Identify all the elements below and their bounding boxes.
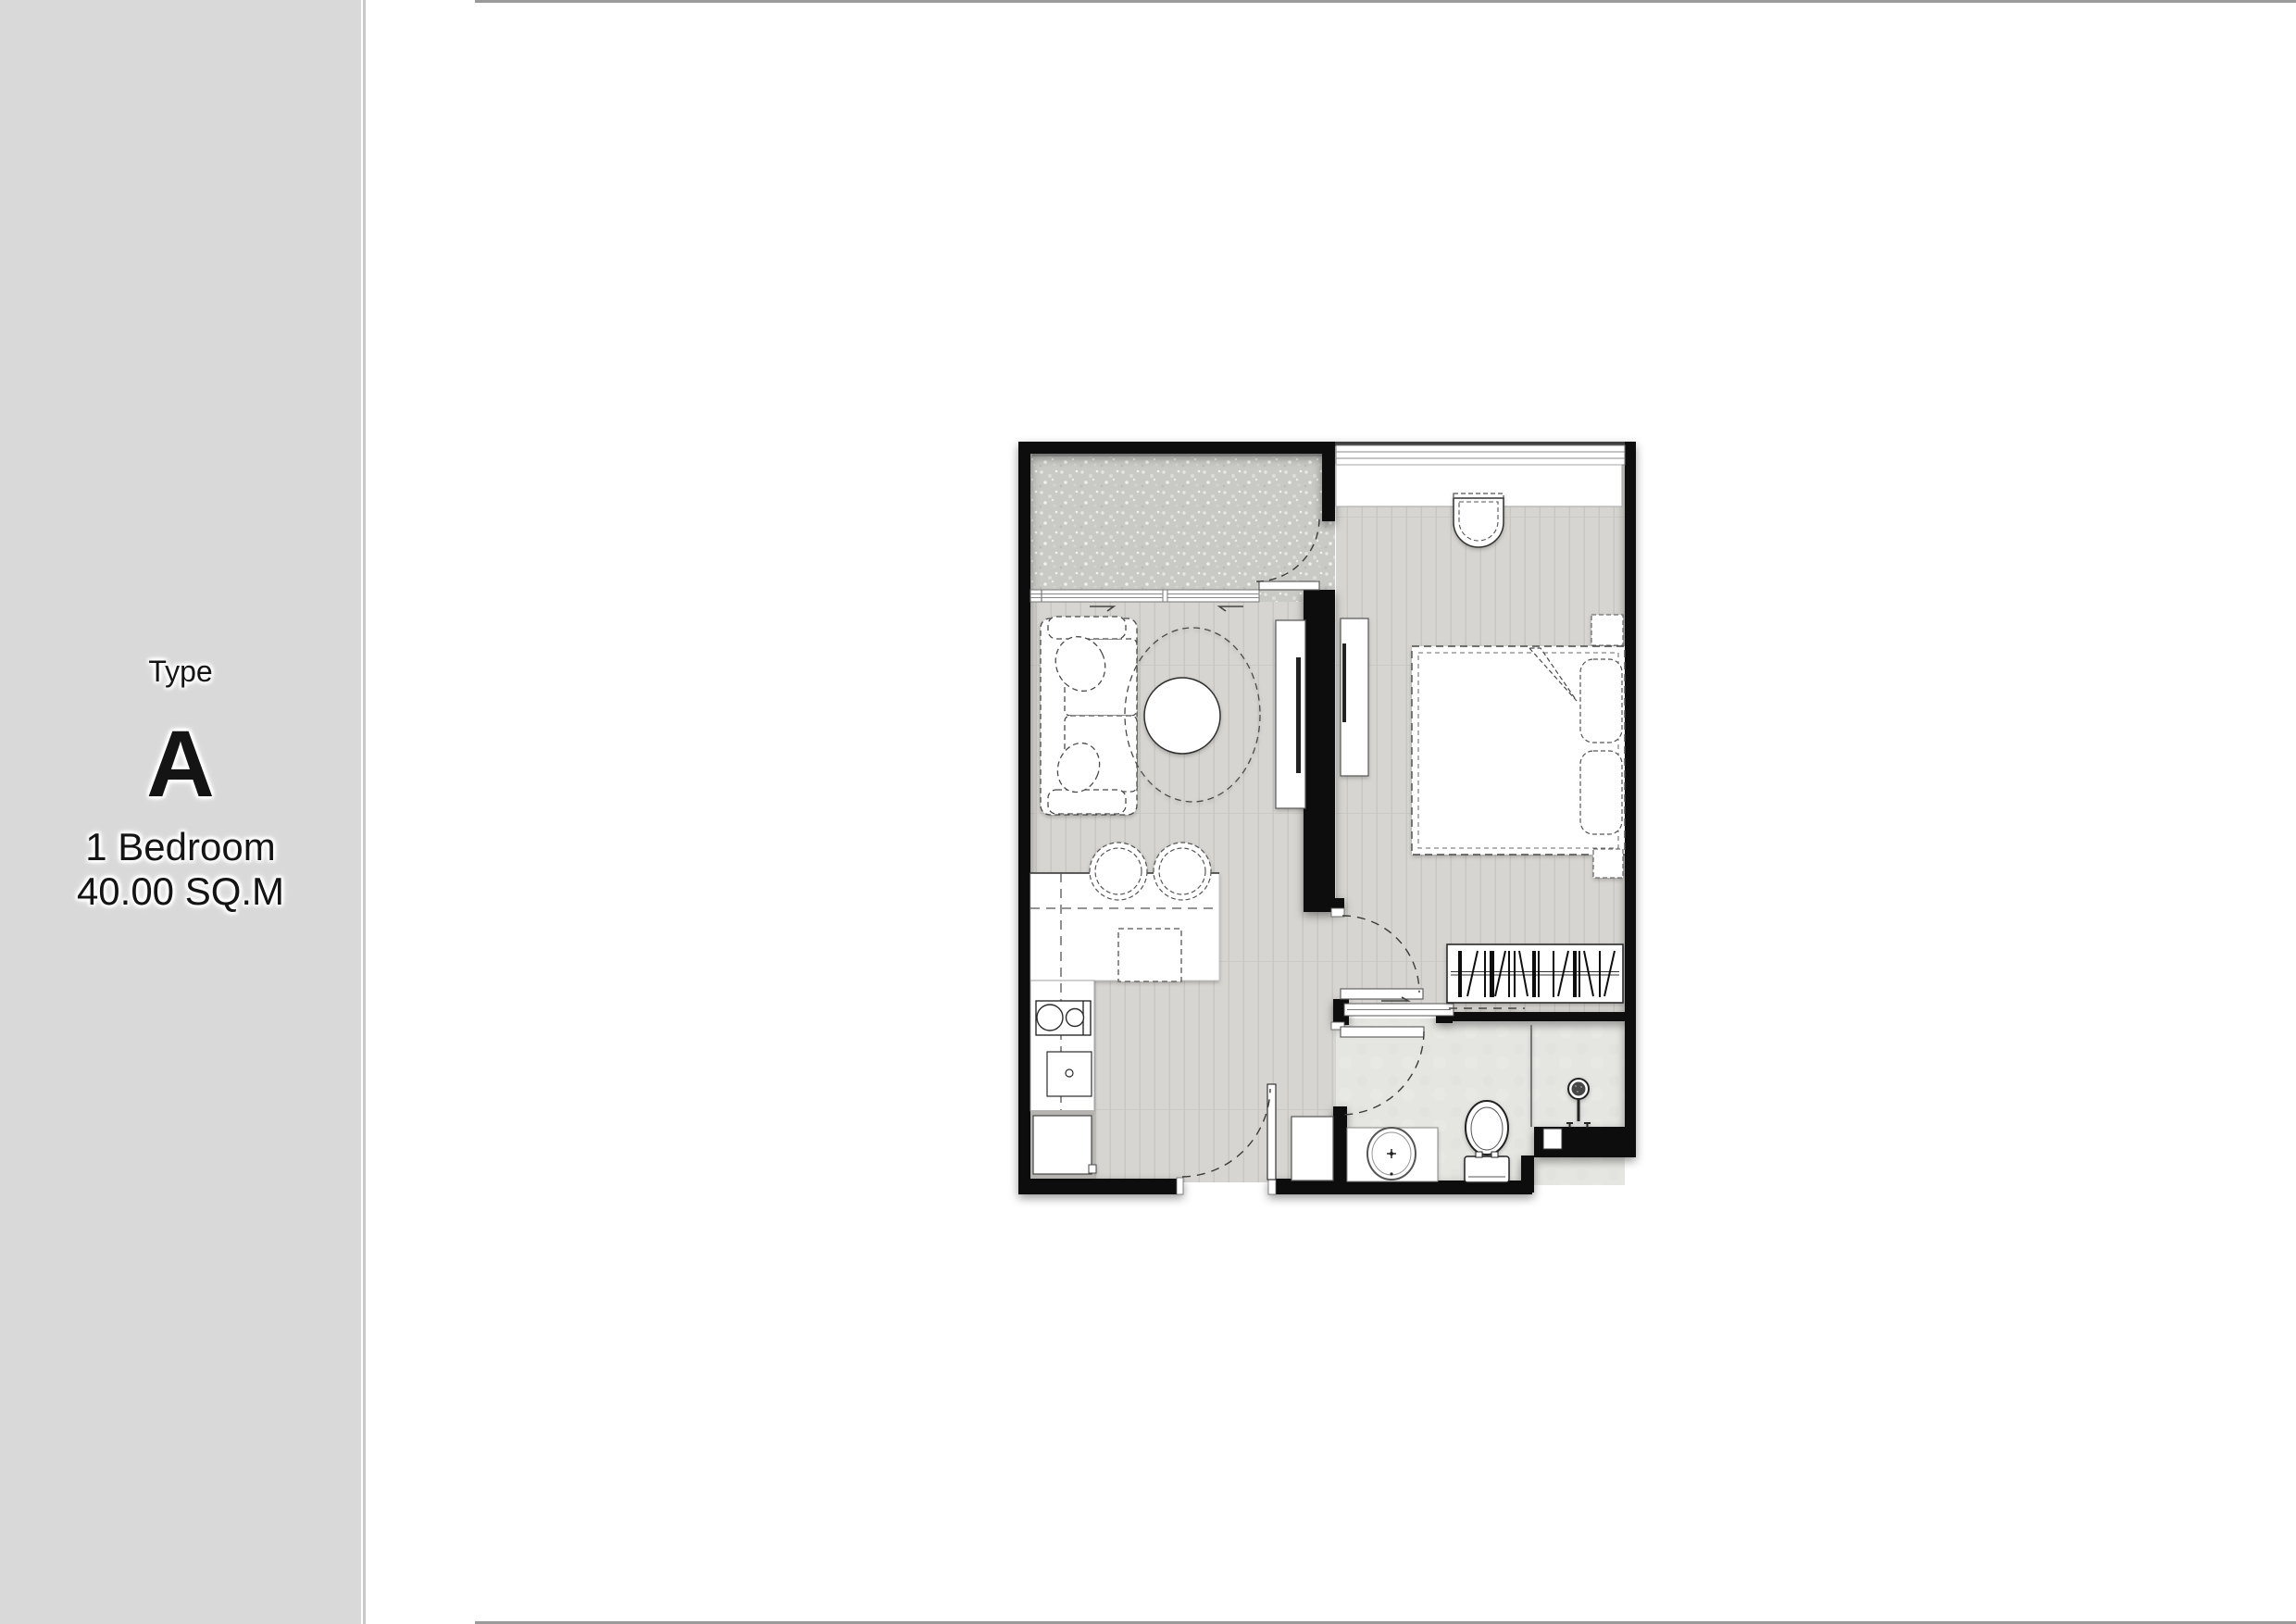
- bedroom-tv: [1342, 643, 1346, 722]
- refrigerator: [1030, 1110, 1096, 1179]
- pillow: [1580, 751, 1622, 834]
- shoe-cabinet: [1291, 1117, 1333, 1181]
- wall-balcony-stub: [1322, 442, 1335, 521]
- floor-plan: [0, 0, 2296, 1624]
- living-window: [1030, 590, 1259, 602]
- wall-right: [1625, 442, 1636, 1141]
- coffee-table: [1144, 678, 1220, 754]
- wall-top-balcony: [1018, 442, 1335, 454]
- wall-left: [1018, 442, 1030, 1194]
- bed: [1412, 646, 1625, 855]
- page: Type A 1 Bedroom 40.00 SQ.M: [0, 0, 2296, 1624]
- stove: [1036, 1001, 1091, 1035]
- wall-tv-partition: [1304, 590, 1335, 912]
- wall-step-vertical: [1521, 1156, 1534, 1193]
- toilet: [1465, 1101, 1509, 1182]
- wardrobe: [1447, 944, 1623, 1008]
- sofa: [1041, 617, 1137, 815]
- tv: [1296, 657, 1301, 773]
- balcony-edge-line: [1032, 454, 1322, 456]
- pillow: [1580, 659, 1622, 743]
- wall-bathroom-top: [1441, 1012, 1636, 1021]
- duct-notch: [1543, 1129, 1562, 1149]
- bedroom-tv-cabinet: [1341, 618, 1368, 776]
- balcony-floor: [1030, 443, 1335, 602]
- nightstand: [1593, 849, 1623, 878]
- kitchen-sink: [1047, 1052, 1092, 1096]
- table-leaf: [1118, 929, 1181, 981]
- tv-console: [1276, 620, 1305, 808]
- dining-chair: [1090, 843, 1147, 900]
- vanity-sink: [1347, 1128, 1438, 1181]
- nightstand: [1591, 615, 1623, 645]
- dining-chair: [1154, 843, 1211, 900]
- desk-chair: [1454, 493, 1504, 547]
- wall-bottom-left: [1018, 1179, 1183, 1194]
